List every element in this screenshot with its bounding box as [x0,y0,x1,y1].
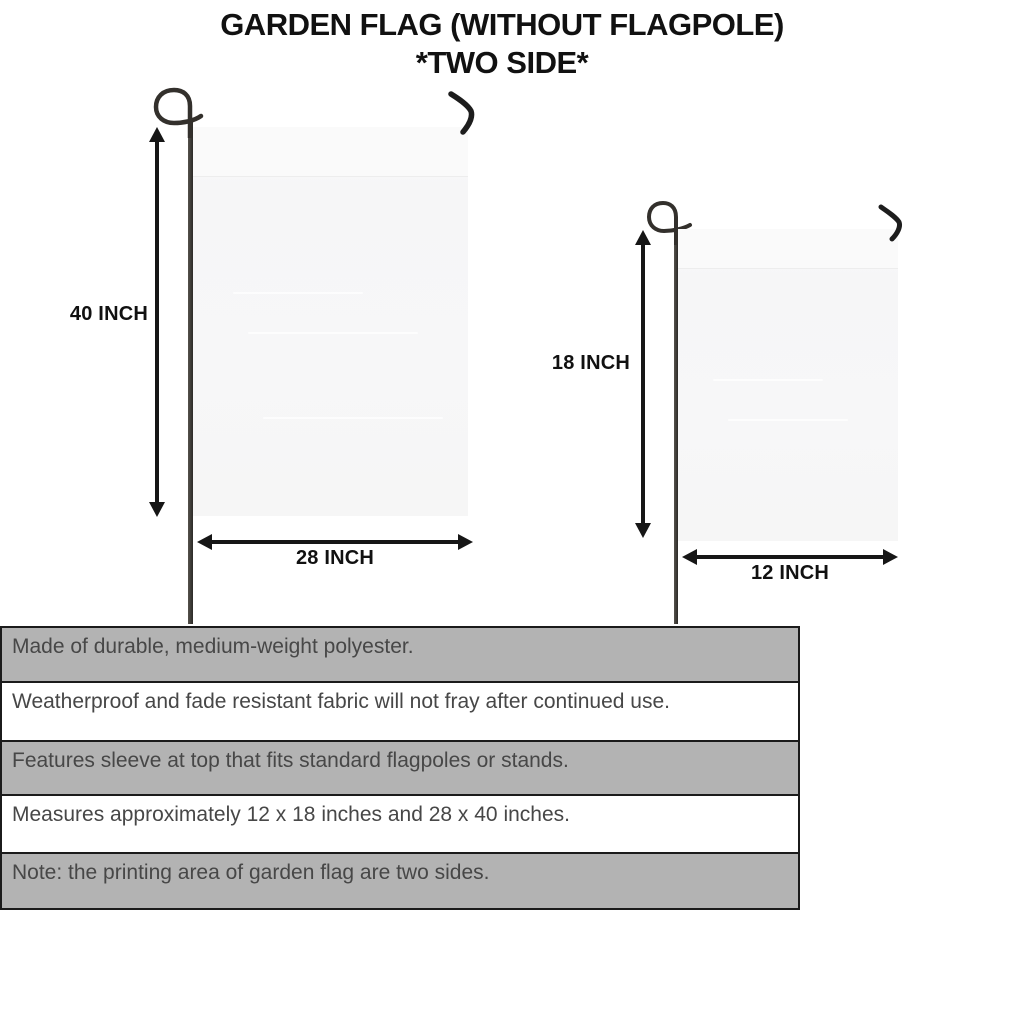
large-flag-height-label: 40 INCH [50,303,148,326]
small-flag-height-label: 18 INCH [533,352,630,375]
large-flag-sleeve [193,127,468,177]
small-flag-clip-icon [877,204,907,244]
feature-row-weatherproof: Weatherproof and fade resistant fabric w… [2,681,798,740]
small-flag-width-label: 12 INCH [715,562,865,585]
page-title-line-1: GARDEN FLAG (WITHOUT FLAGPOLE) [0,6,1004,44]
large-flag-clip-icon [446,90,480,138]
feature-row-measures: Measures approximately 12 x 18 inches an… [2,794,798,852]
page-title-line-2: *TWO SIDE* [0,44,1004,82]
large-flag-width-label: 28 INCH [260,547,410,570]
small-flag-sleeve [678,229,898,269]
small-flag-canvas [678,229,898,541]
garden-flag-infographic: GARDEN FLAG (WITHOUT FLAGPOLE) *TWO SIDE… [0,0,1024,1024]
feature-row-sleeve: Features sleeve at top that fits standar… [2,740,798,794]
feature-row-material: Made of durable, medium-weight polyester… [2,628,798,681]
feature-row-note: Note: the printing area of garden flag a… [2,852,798,908]
features-table: Made of durable, medium-weight polyester… [0,626,800,910]
large-flag-canvas [193,127,468,516]
